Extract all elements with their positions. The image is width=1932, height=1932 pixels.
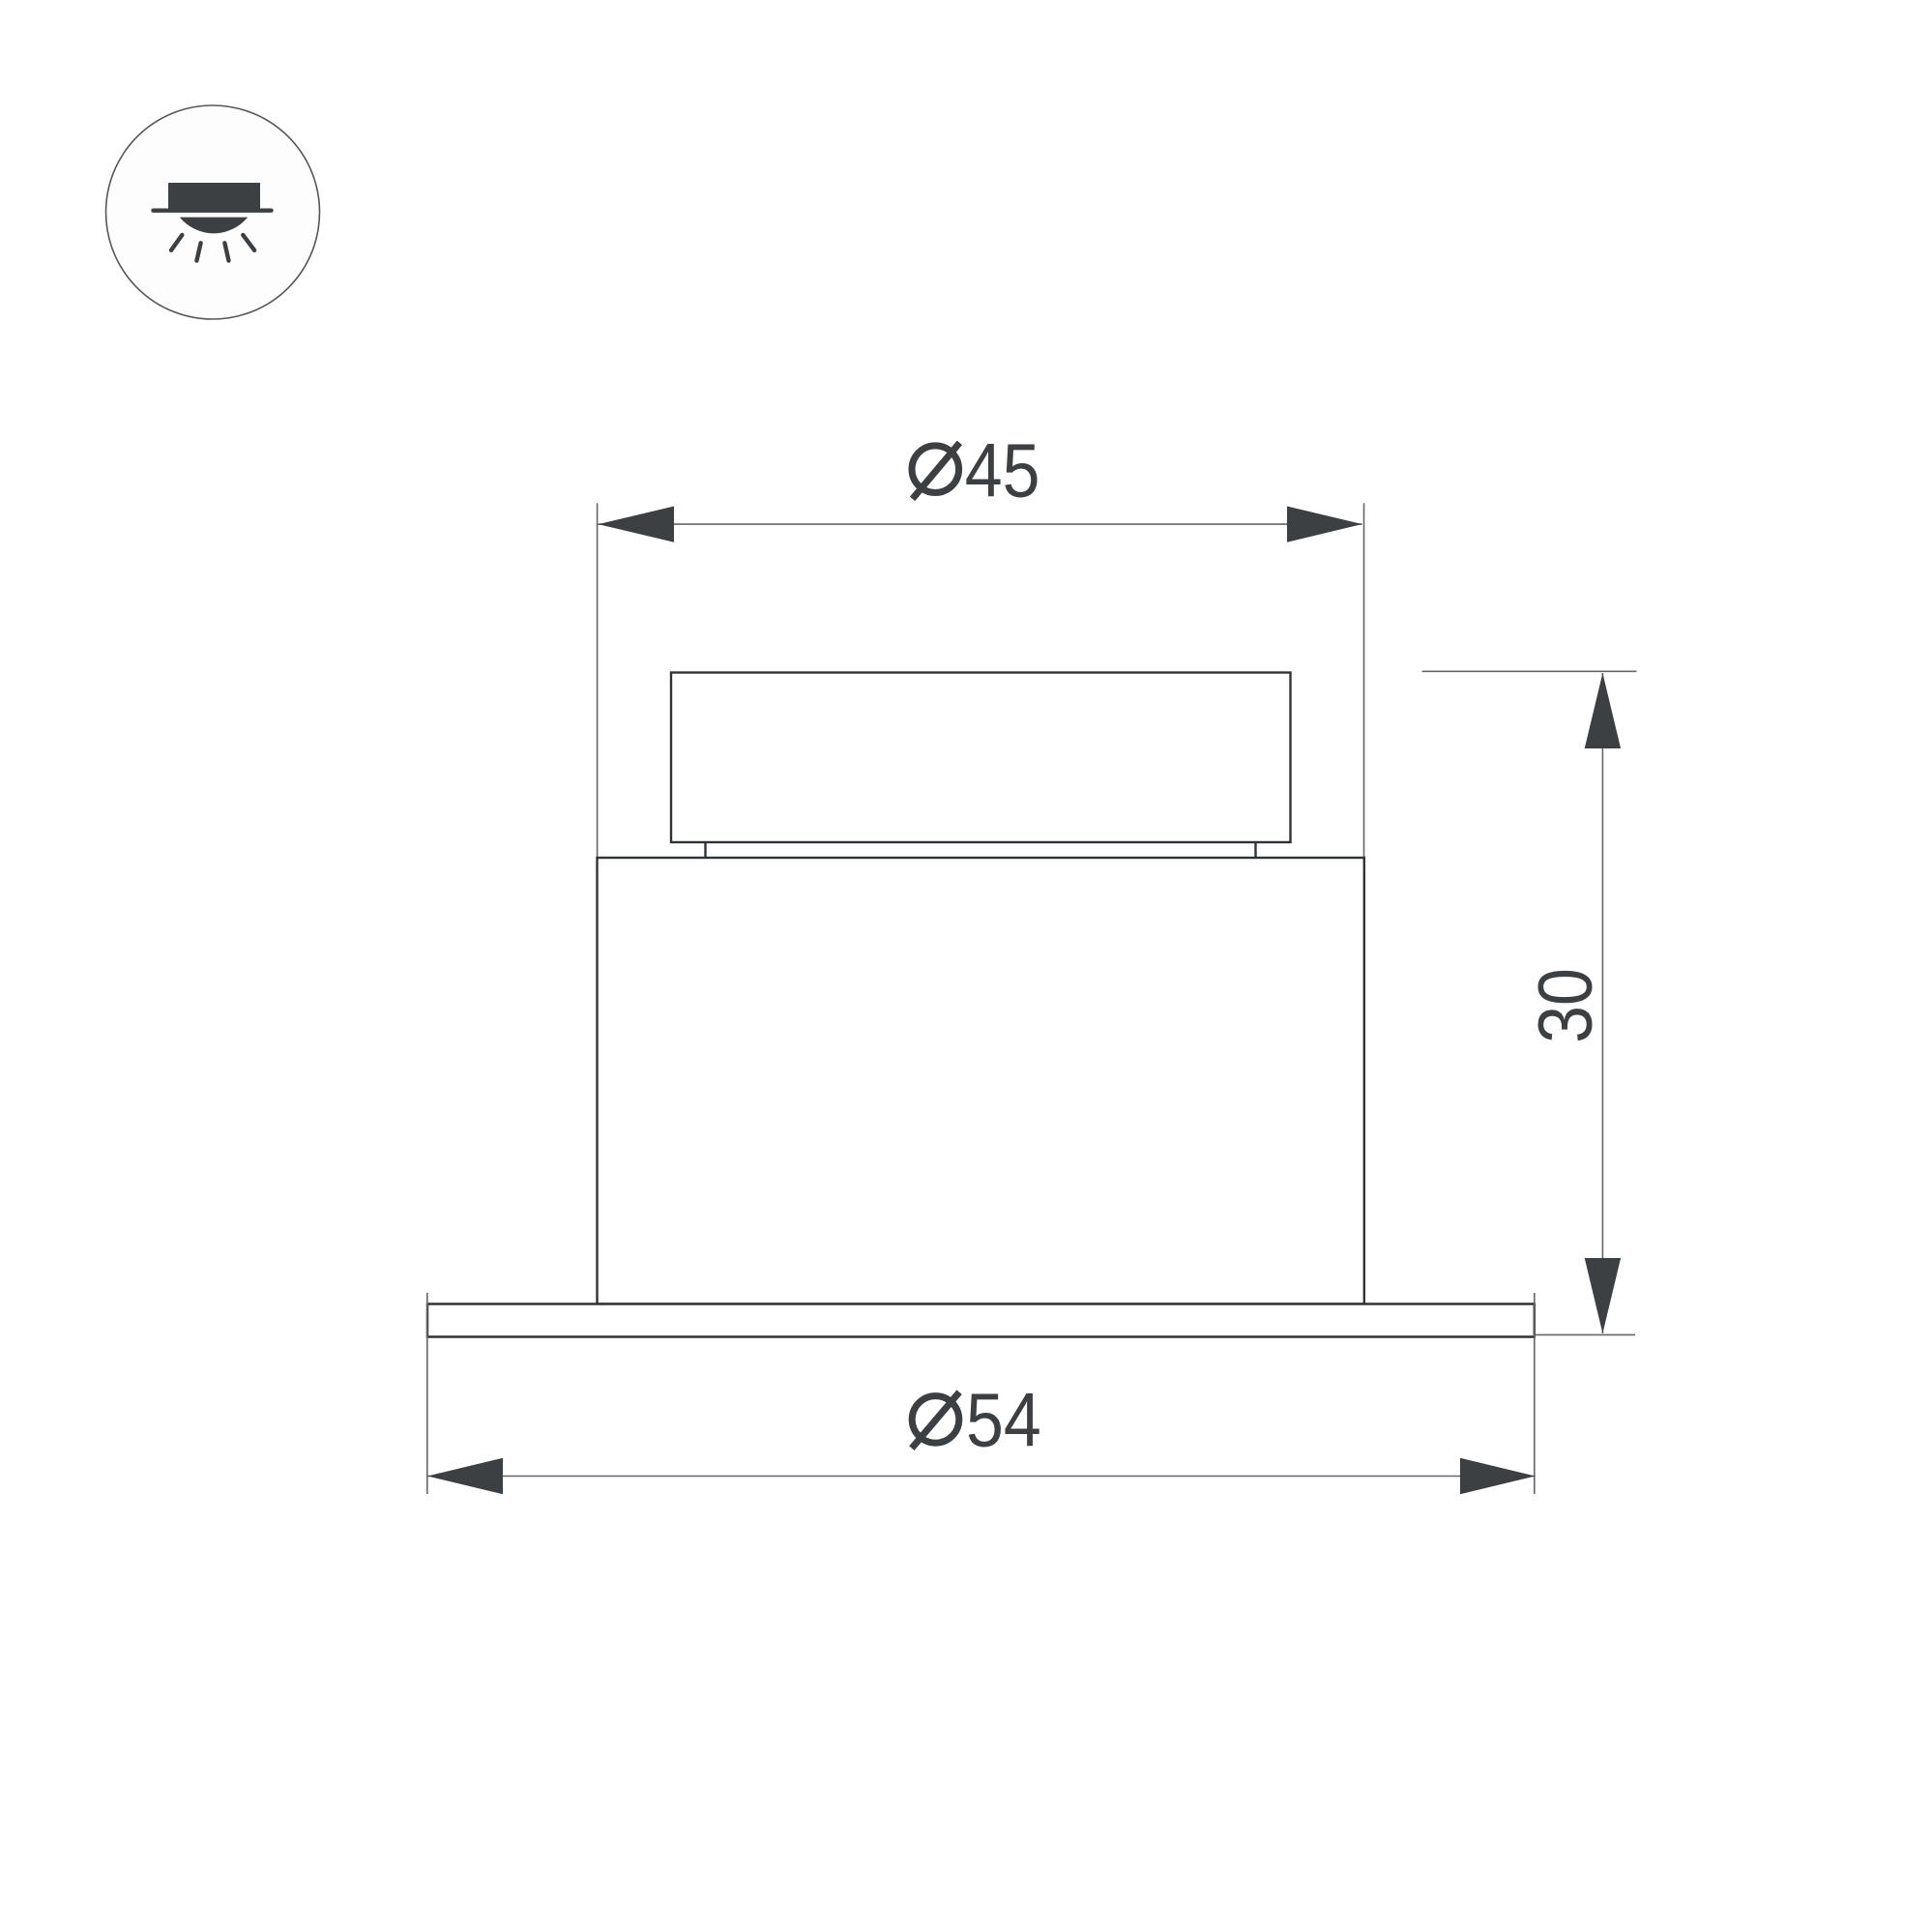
svg-text:54: 54 (966, 1376, 1041, 1462)
svg-text:45: 45 (965, 426, 1040, 512)
svg-text:30: 30 (1521, 968, 1607, 1043)
